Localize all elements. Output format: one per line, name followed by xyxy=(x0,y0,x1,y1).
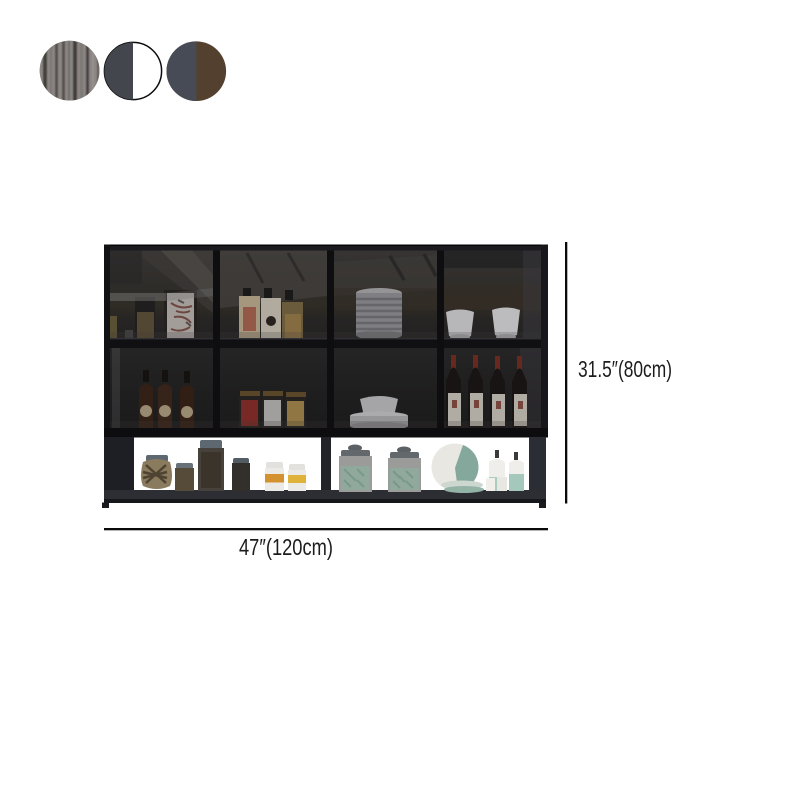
svg-text:31.5″(80cm): 31.5″(80cm) xyxy=(578,356,672,382)
svg-text:47″(120cm): 47″(120cm) xyxy=(239,534,333,560)
